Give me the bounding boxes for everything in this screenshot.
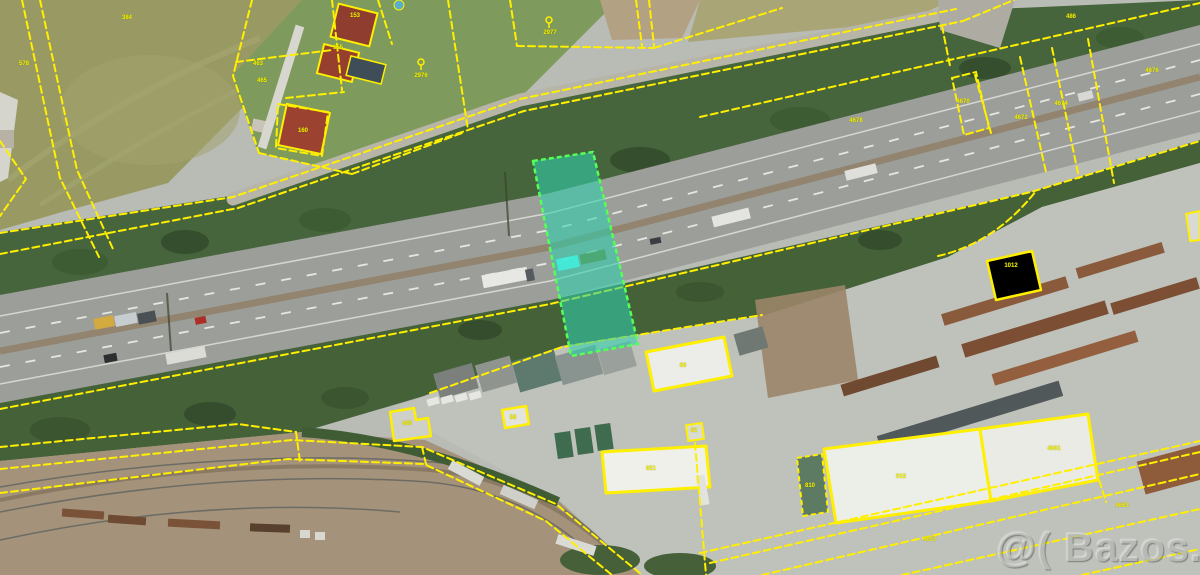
map-image — [0, 0, 1200, 575]
small-shed — [502, 406, 529, 428]
warehouse — [602, 446, 710, 493]
small-warehouse — [987, 251, 1041, 300]
pool — [394, 0, 404, 10]
tiny-building — [686, 423, 704, 441]
aerial-cadastral-map[interactable]: 3845784634651531551602977297648646764674… — [0, 0, 1200, 575]
watermark: @( Bazos.cz — [996, 524, 1200, 571]
